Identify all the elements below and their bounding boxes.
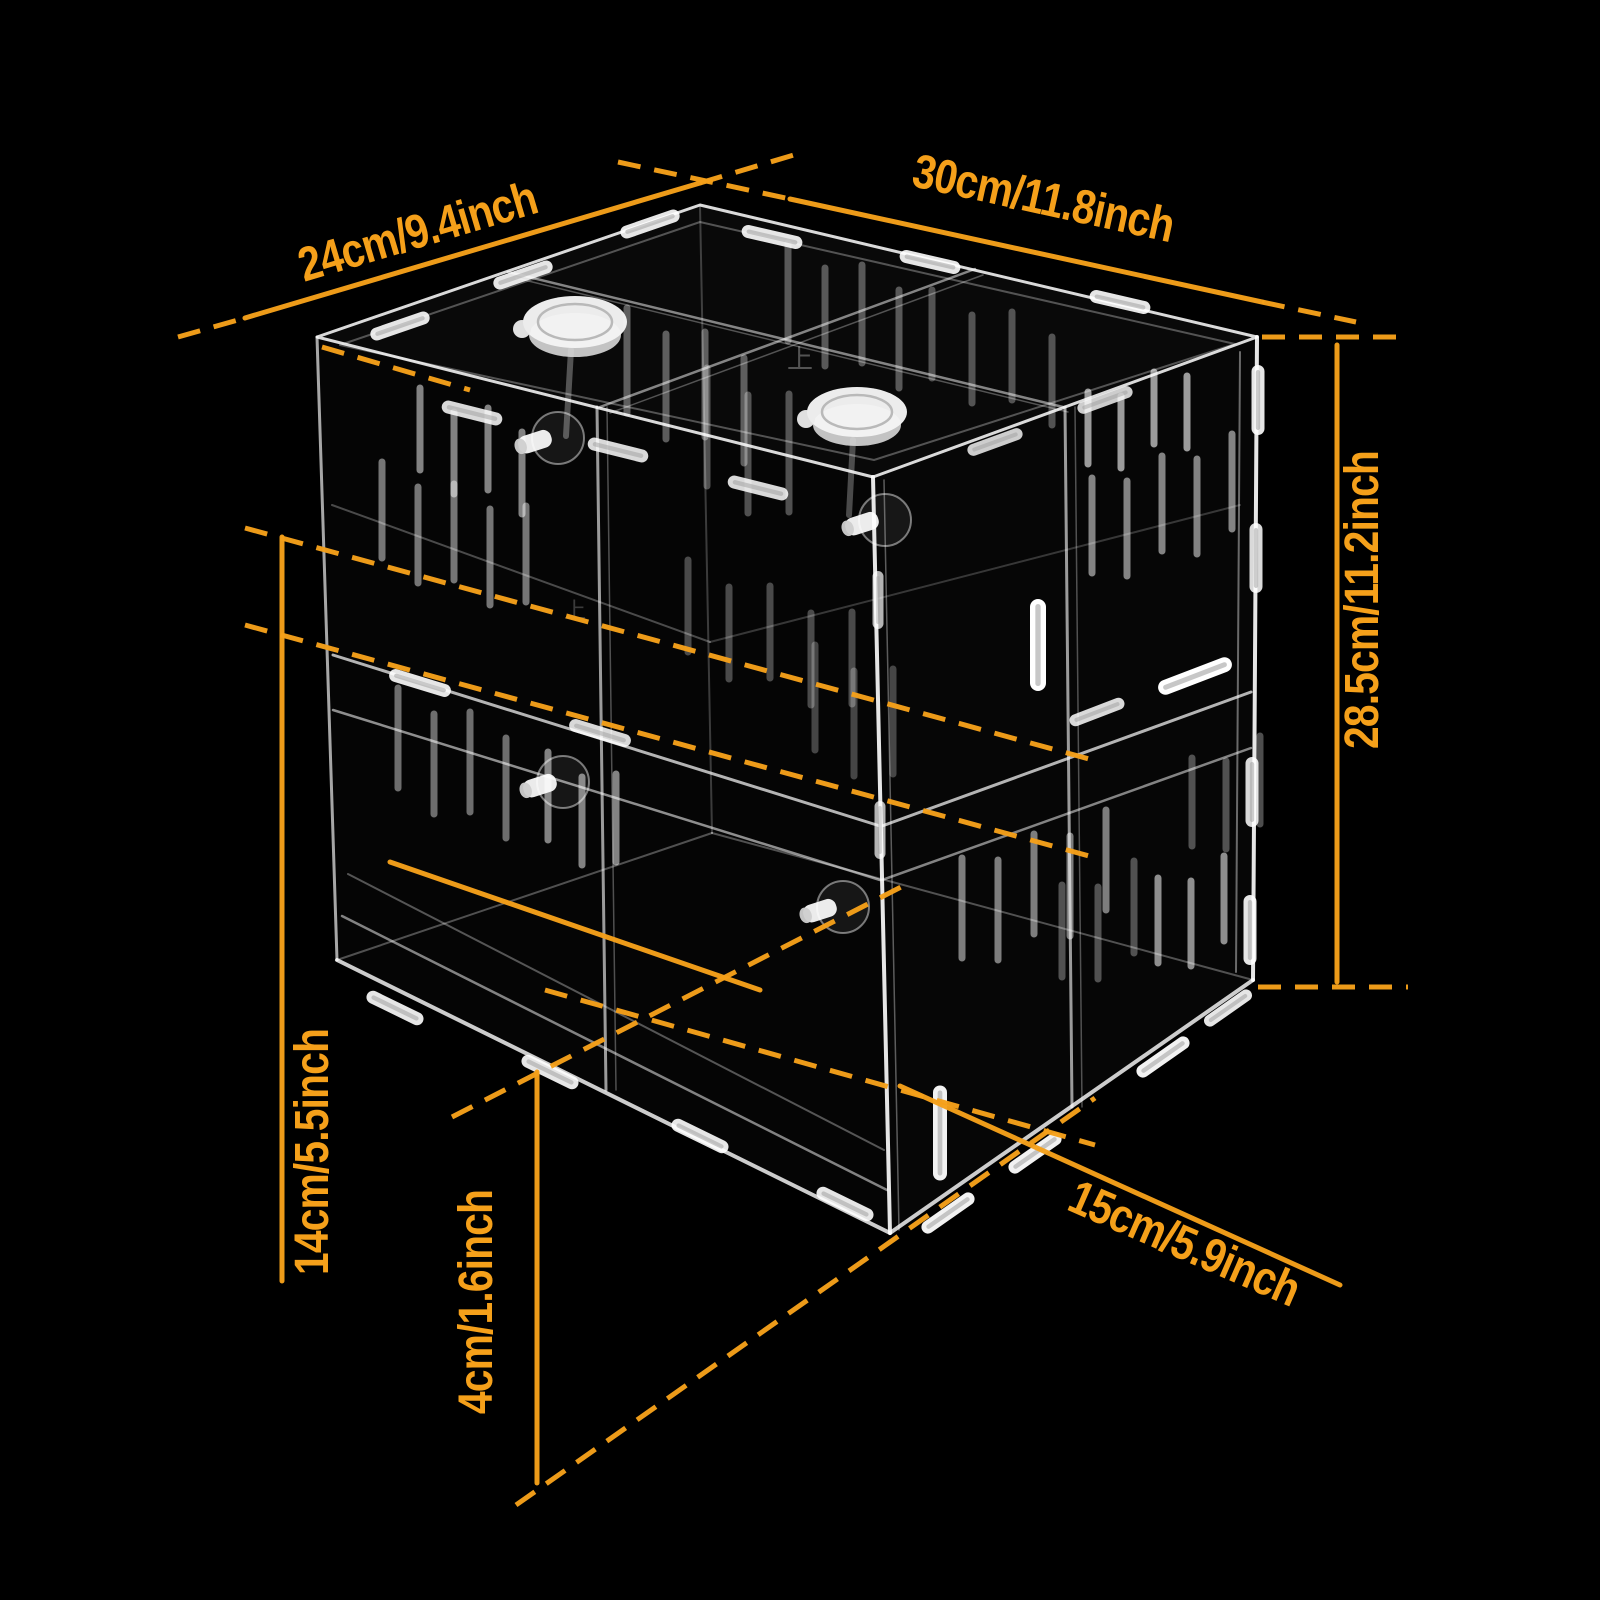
edge-clip	[1252, 365, 1265, 435]
cap-pull-tab	[797, 410, 815, 428]
product-dimension-diagram: 上上 24cm/9.4inch 30cm/11.8inch 28.5cm/11.…	[0, 0, 1600, 1600]
box-edge	[849, 440, 853, 515]
edge-clip	[875, 801, 886, 859]
edge-clip	[1250, 523, 1263, 593]
edge-clip-seam	[1250, 762, 1254, 822]
compartment-height-dimension-label: 14cm/5.5inch	[286, 1029, 339, 1275]
edge-clip-seam	[878, 806, 882, 854]
edge-clip	[873, 571, 884, 629]
edge-clip	[1030, 599, 1046, 691]
height-dimension-label: 28.5cm/11.2inch	[1336, 451, 1389, 749]
cap-pull-tab	[513, 320, 531, 338]
diagram-canvas: 上上 24cm/9.4inch 30cm/11.8inch 28.5cm/11.…	[0, 0, 1600, 1600]
edge-clip-seam	[876, 576, 880, 624]
edge-clip-seam	[1254, 528, 1258, 588]
tray-height-dimension-label: 4cm/1.6inch	[450, 1190, 503, 1414]
etched-mark: 上	[787, 345, 813, 375]
edge-clip-seam	[1256, 370, 1260, 430]
edge-clip-seam	[1035, 604, 1040, 686]
edge-clip	[1244, 895, 1257, 965]
edge-clip-seam	[1248, 900, 1252, 960]
edge-clip	[1246, 757, 1259, 827]
